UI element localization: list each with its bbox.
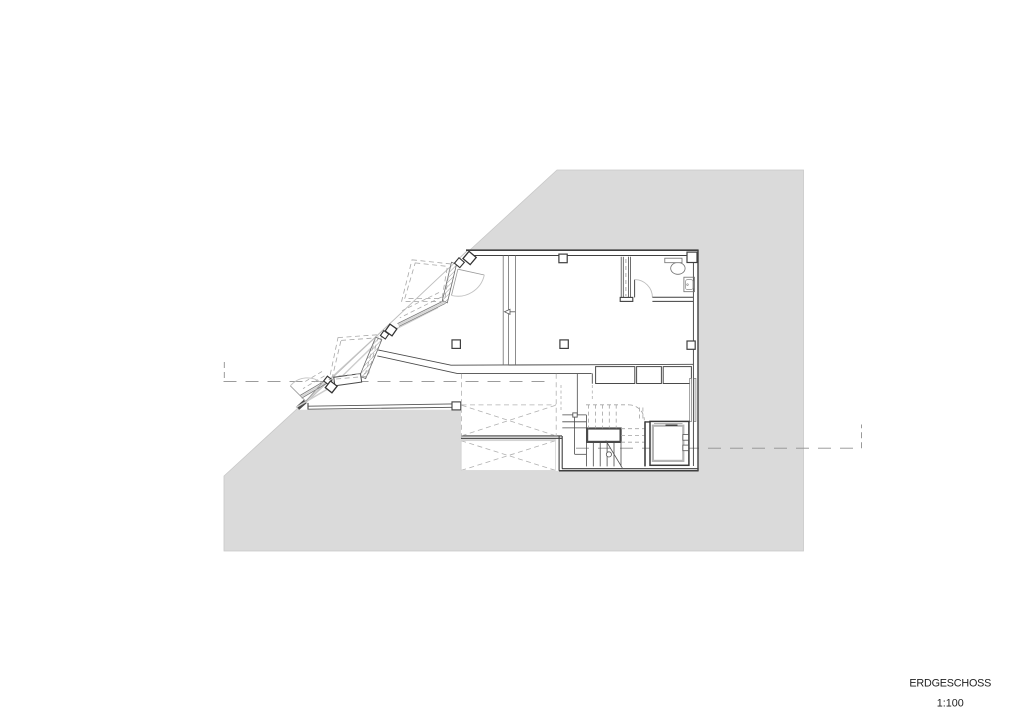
svg-text:1:100: 1:100 (937, 698, 964, 710)
svg-text:ERDGESCHOSS: ERDGESCHOSS (909, 677, 991, 689)
